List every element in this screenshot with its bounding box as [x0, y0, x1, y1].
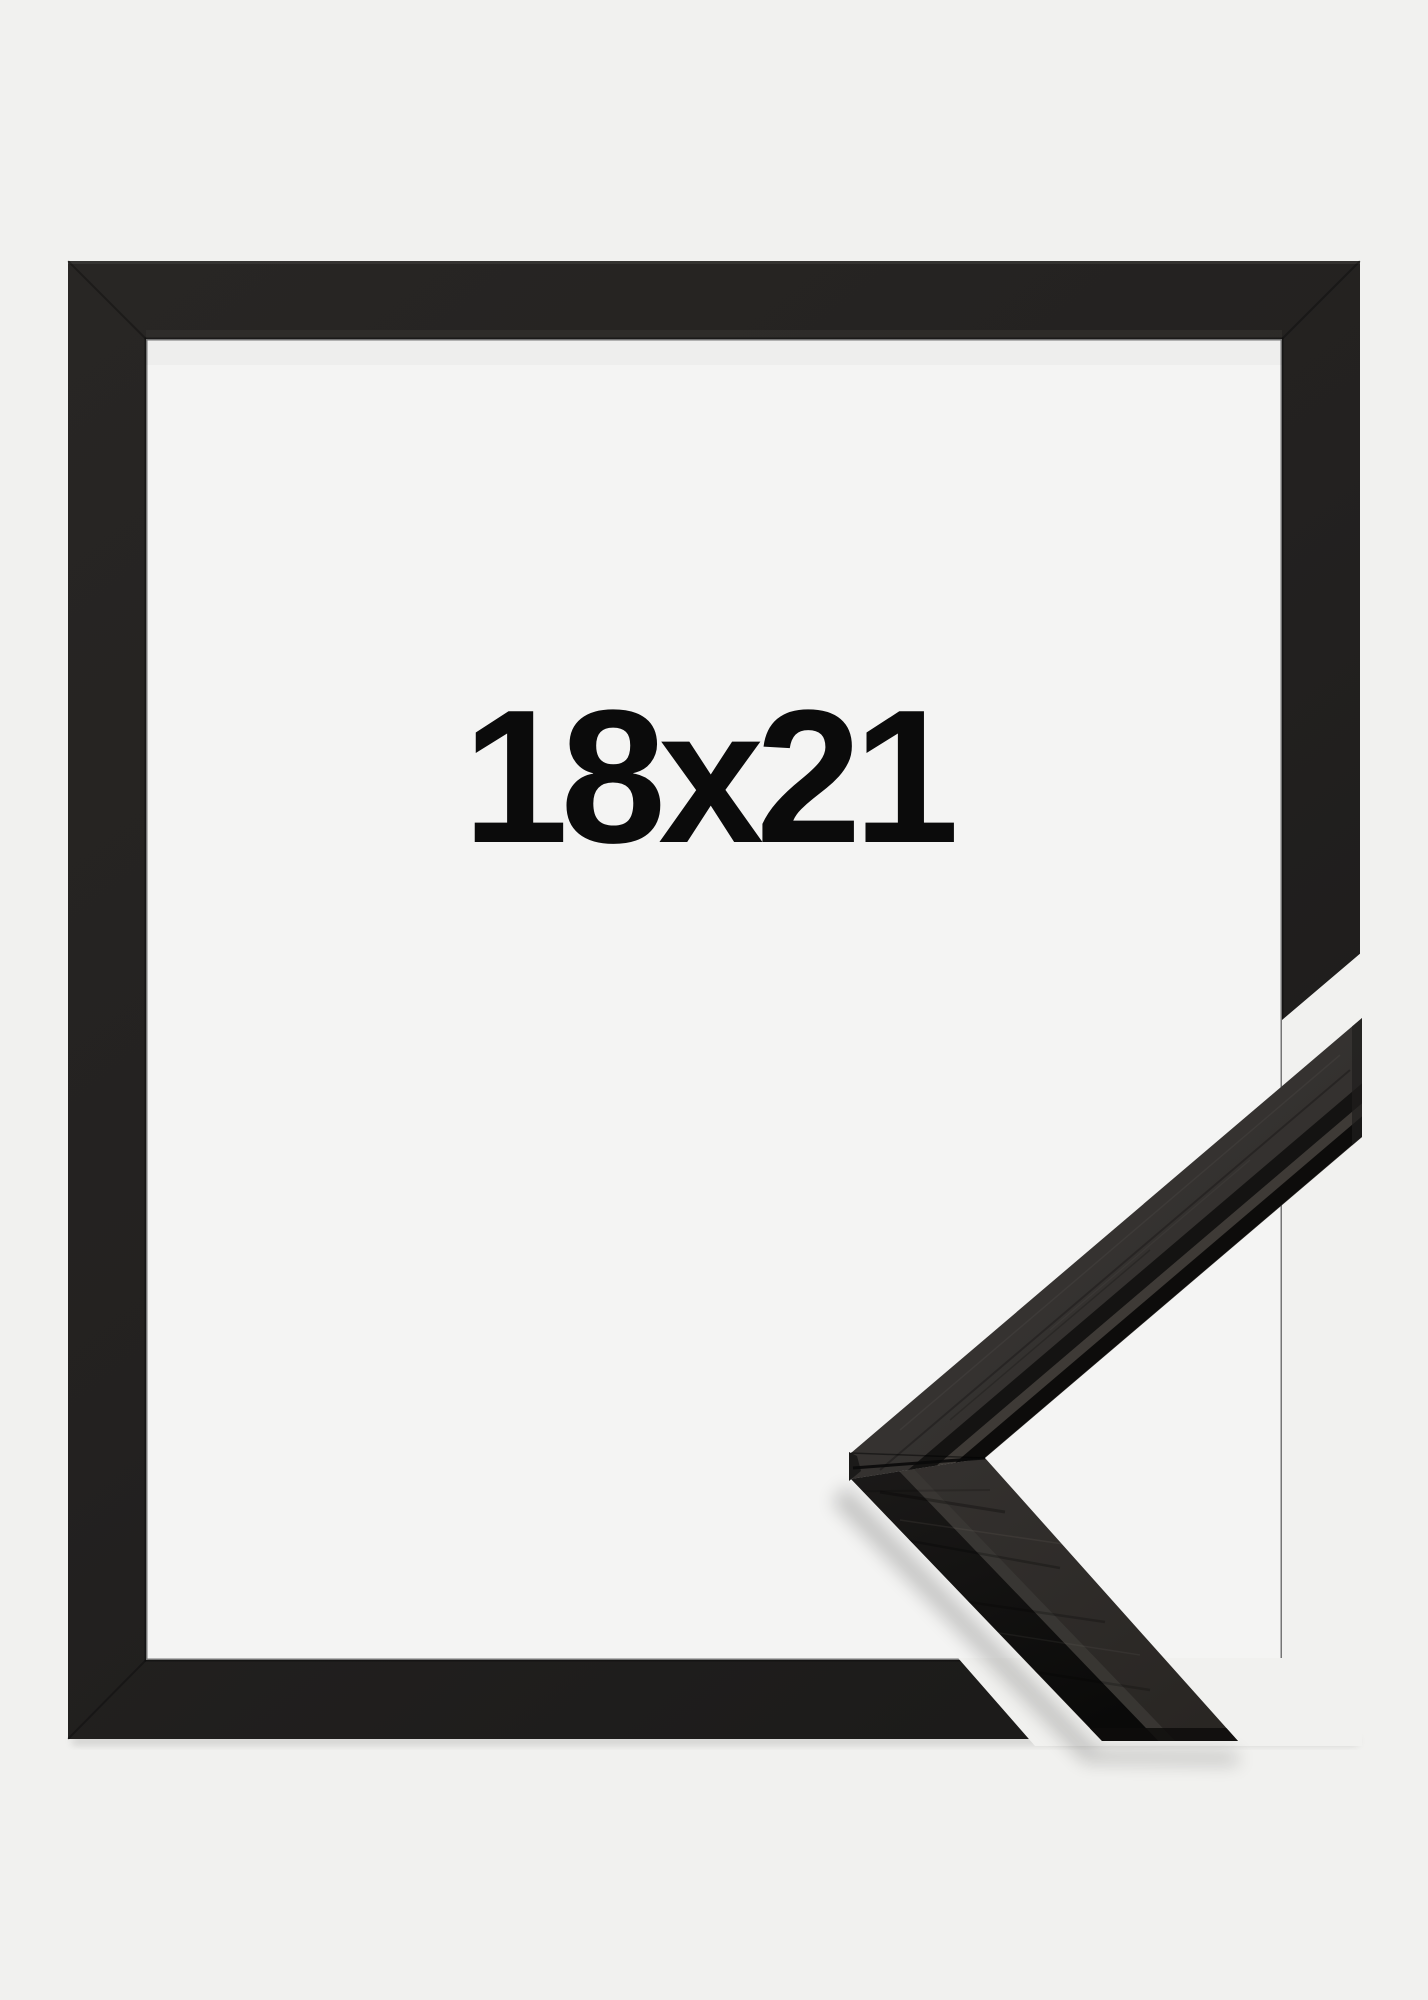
- lower-arm-end-cut: [1090, 1728, 1250, 1741]
- size-label: 18x21: [463, 682, 951, 872]
- frame-opening: [146, 339, 1282, 1660]
- frame-product-illustration: [0, 0, 1428, 2000]
- product-photo-frame-18x21: 18x21: [0, 0, 1428, 2000]
- frame-top-edge-highlight: [68, 261, 1360, 264]
- opening-inner-shadow: [146, 339, 1282, 365]
